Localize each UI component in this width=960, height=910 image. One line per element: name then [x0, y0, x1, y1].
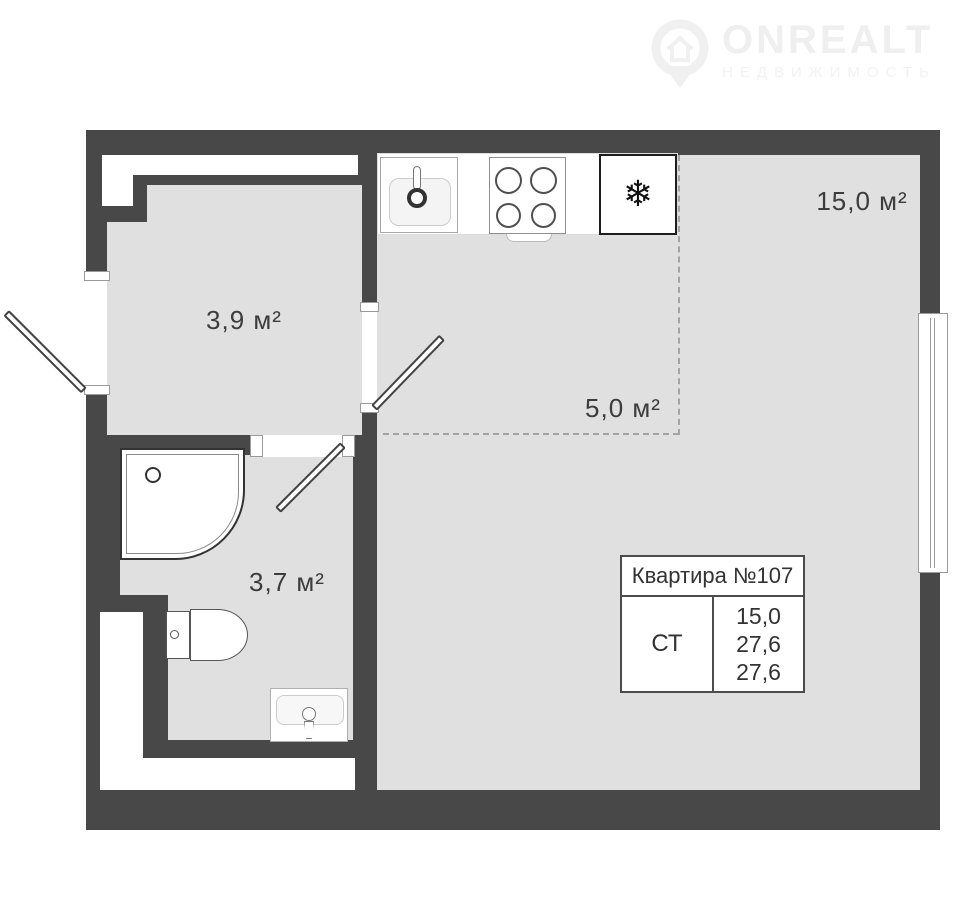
entrance-opening — [86, 275, 107, 390]
entrance-sill-top — [84, 271, 110, 281]
stove-burner — [531, 203, 556, 228]
window-glass-line — [930, 318, 935, 568]
wash-basin — [270, 688, 348, 742]
stove-handle — [506, 234, 552, 242]
bathroom-sill-left — [250, 435, 263, 457]
apartment-type: СТ — [622, 597, 714, 691]
kitchen-sink — [380, 157, 458, 233]
wall-niche-top-left — [102, 155, 133, 206]
entrance-sill-bottom — [84, 385, 110, 395]
kitchen-zone-dashed-horizontal — [383, 433, 679, 435]
apartment-info-table: Квартира №107 СТ 15,0 27,6 27,6 — [620, 555, 805, 693]
hallway-area-label: 3,9 м² — [159, 305, 329, 336]
fridge: ❄ — [599, 154, 677, 235]
hall-living-opening — [362, 308, 377, 410]
watermark-brand: ONREALT — [722, 18, 936, 62]
shower-inner-line — [126, 454, 239, 554]
wall-bathroom-left-lower — [143, 612, 168, 758]
living-area-label: 15,0 м² — [777, 186, 947, 217]
shower-drain — [145, 467, 161, 483]
area-value: 27,6 — [736, 630, 781, 658]
hall-living-sill-top — [360, 302, 379, 312]
watermark-subtitle: НЕДВИЖИМОСТЬ — [722, 64, 936, 81]
onrealt-watermark: ONREALT НЕДВИЖИМОСТЬ — [648, 18, 948, 108]
snowflake-icon: ❄ — [623, 174, 653, 215]
wall-bathroom-step — [103, 595, 168, 612]
recess-bottom — [100, 758, 355, 790]
area-value: 27,6 — [736, 658, 781, 686]
room-living-floor — [377, 155, 920, 790]
stove-burner — [496, 203, 521, 228]
bathroom-area-label: 3,7 м² — [202, 567, 372, 598]
entrance-door-leaf — [3, 310, 86, 393]
onrealt-pin-house-icon — [648, 18, 712, 94]
toilet-flush-button — [170, 630, 179, 639]
area-value: 15,0 — [736, 602, 781, 630]
stove-burner — [495, 167, 522, 194]
stove — [489, 157, 566, 234]
stove-burner — [530, 167, 557, 194]
toilet-bowl — [190, 609, 248, 661]
kitchen-faucet-head — [407, 188, 427, 208]
apartment-title: Квартира №107 — [622, 557, 803, 597]
kitchen-faucet-stem — [413, 166, 421, 190]
wall-niche-top — [102, 155, 358, 175]
kitchen-area-label: 5,0 м² — [538, 393, 708, 424]
basin-faucet-head — [302, 707, 316, 721]
floor-plan-canvas: ONREALT НЕДВИЖИМОСТЬ — [0, 0, 960, 910]
basin-faucet-stem — [304, 721, 314, 739]
apartment-areas: 15,0 27,6 27,6 — [714, 597, 803, 691]
